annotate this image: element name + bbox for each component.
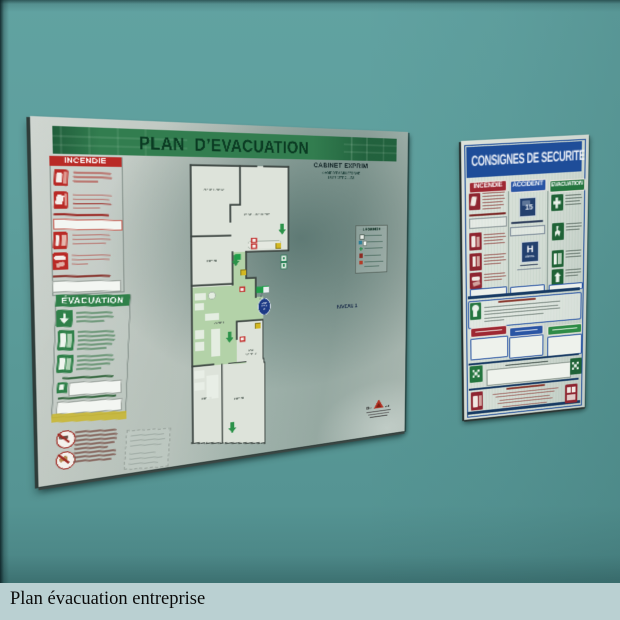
svg-text:Grande Salle Détente: Grande Salle Détente: [243, 213, 271, 217]
svg-text:ICI: ICI: [263, 307, 266, 310]
svg-text:Bureau: Bureau: [207, 259, 217, 263]
svg-text:Salle de Réunion: Salle de Réunion: [202, 188, 225, 191]
